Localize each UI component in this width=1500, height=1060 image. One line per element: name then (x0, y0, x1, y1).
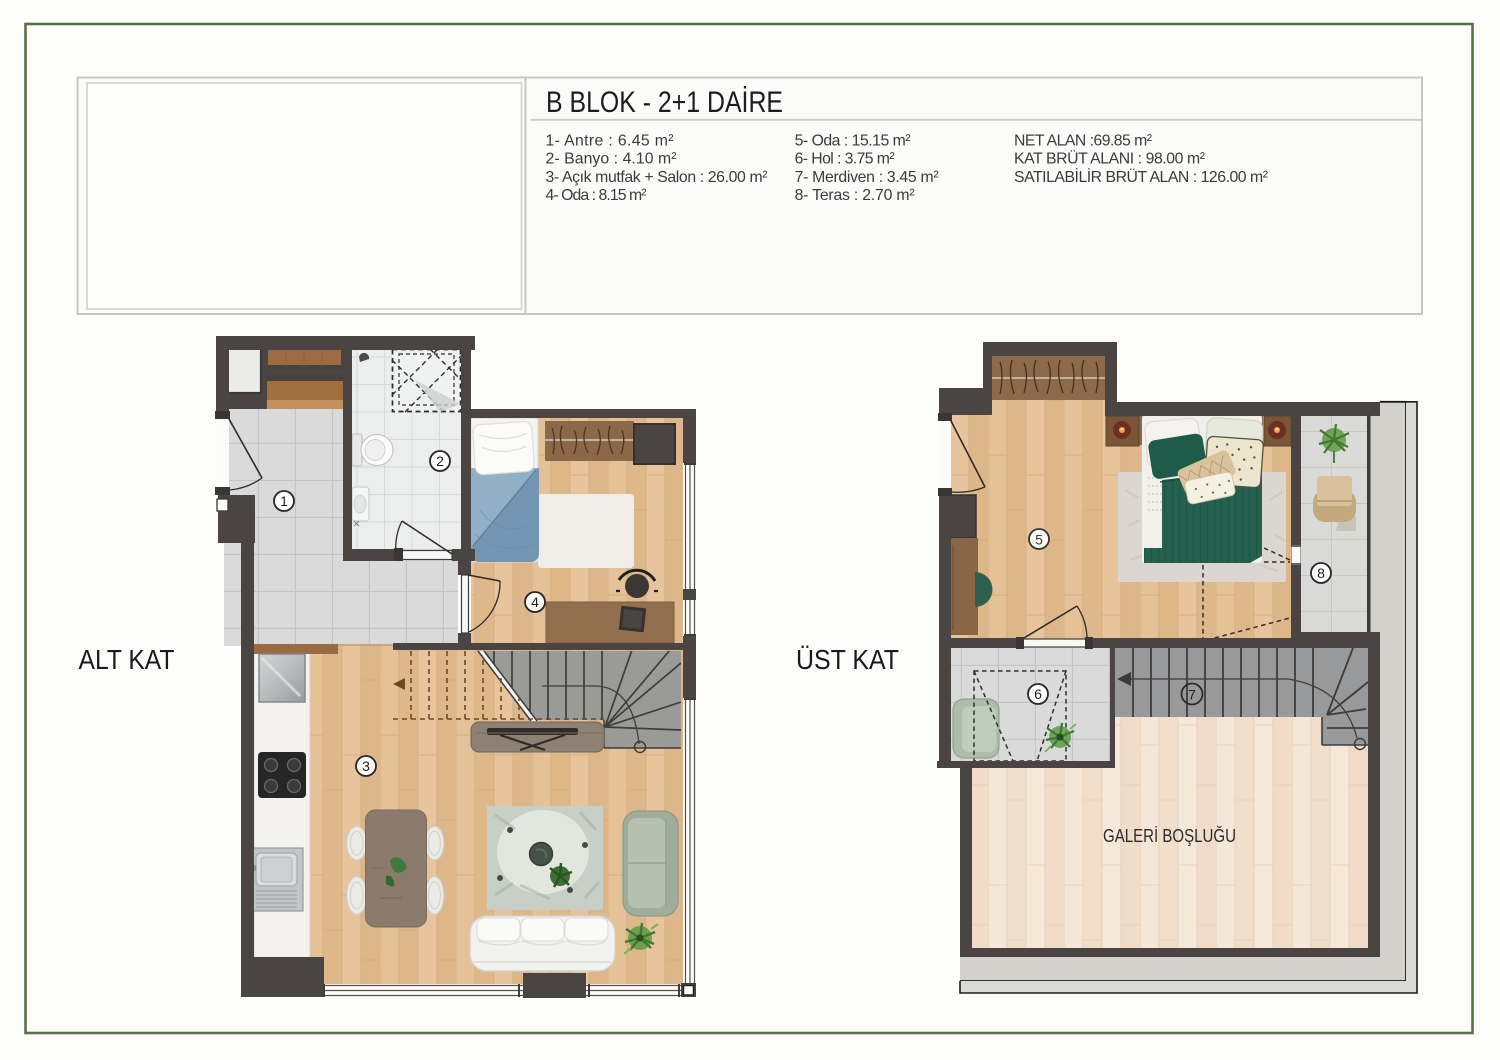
svg-text:6: 6 (1034, 686, 1042, 702)
svg-text:KAT BRÜT ALANI : 98.00 m²: KAT BRÜT ALANI : 98.00 m² (1014, 150, 1205, 168)
svg-text:NET ALAN :69.85 m²: NET ALAN :69.85 m² (1014, 132, 1152, 149)
svg-text:1- Antre : 6.45 m²: 1- Antre : 6.45 m² (546, 132, 674, 149)
svg-text:3- Açık mutfak + Salon : 26.00: 3- Açık mutfak + Salon : 26.00 m² (546, 169, 768, 186)
svg-text:8- Teras : 2.70 m²: 8- Teras : 2.70 m² (795, 187, 915, 204)
svg-text:3: 3 (362, 758, 370, 774)
svg-text:4- Oda : 8.15 m²: 4- Oda : 8.15 m² (546, 187, 647, 204)
svg-text:4: 4 (531, 594, 539, 610)
svg-text:1: 1 (280, 493, 288, 509)
svg-text:GALERİ BOŞLUĞU: GALERİ BOŞLUĞU (1103, 825, 1236, 846)
svg-text:ÜST KAT: ÜST KAT (796, 644, 899, 675)
svg-text:B BLOK - 2+1 DAİRE: B BLOK - 2+1 DAİRE (546, 86, 783, 119)
svg-text:5: 5 (1035, 531, 1043, 547)
svg-text:6- Hol : 3.75 m²: 6- Hol : 3.75 m² (795, 151, 895, 168)
svg-text:5- Oda : 15.15 m²: 5- Oda : 15.15 m² (795, 132, 911, 149)
svg-text:2: 2 (436, 453, 444, 469)
svg-text:7- Merdiven : 3.45 m²: 7- Merdiven : 3.45 m² (795, 169, 939, 186)
svg-text:8: 8 (1317, 565, 1325, 581)
svg-text:2- Banyo : 4.10 m²: 2- Banyo : 4.10 m² (546, 151, 677, 168)
svg-text:7: 7 (1188, 686, 1196, 702)
svg-text:ALT KAT: ALT KAT (79, 644, 175, 675)
svg-text:SATILABİLİR BRÜT ALAN : 126.00: SATILABİLİR BRÜT ALAN : 126.00 m² (1014, 167, 1268, 186)
